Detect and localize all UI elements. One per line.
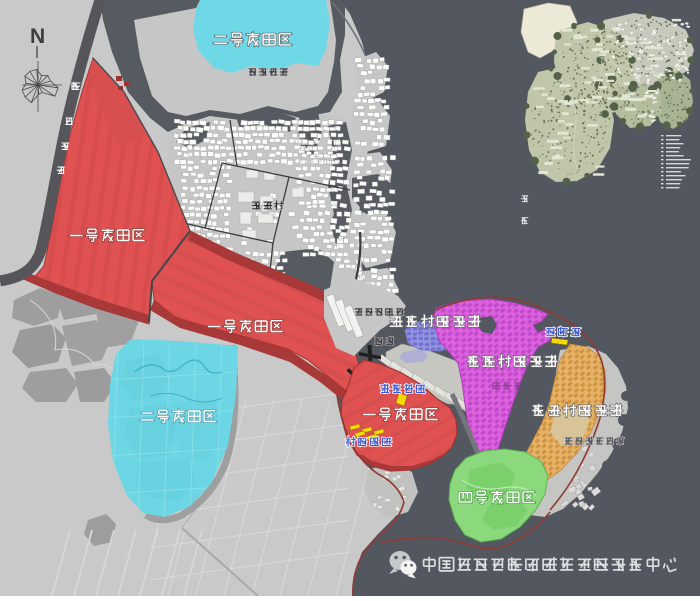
svg-text:N: N [30,25,45,48]
